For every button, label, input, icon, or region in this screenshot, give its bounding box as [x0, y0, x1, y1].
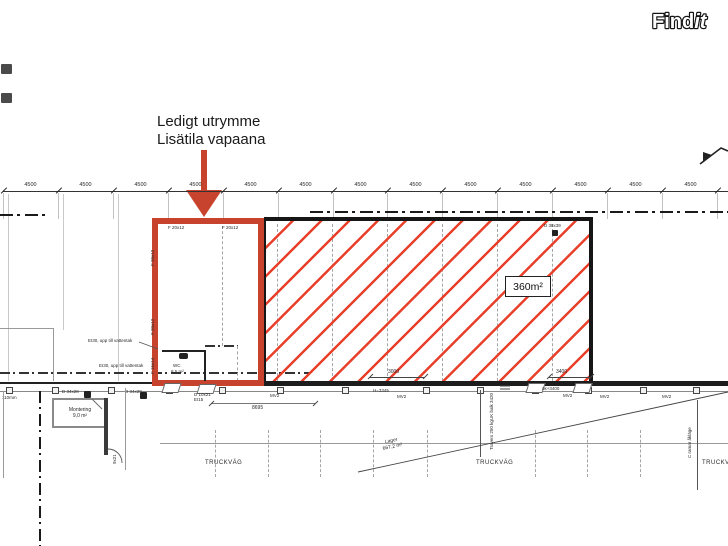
window-label-top-2: F 20x12: [222, 225, 238, 230]
fire-note-2: EI30, upp till vattentak: [99, 363, 143, 368]
truck-grid: [320, 430, 321, 477]
logo-it-text: it: [694, 11, 708, 33]
truck-route-label: TRUCKVÄG: [476, 460, 513, 466]
left-edge-wall: [3, 391, 4, 478]
rail-symbol: [500, 386, 510, 389]
corridor-wall: [125, 388, 126, 470]
area-size-label: 360m²: [513, 281, 543, 293]
column: [52, 387, 59, 394]
door-34-icon: [84, 391, 91, 398]
door-10-label: D 10x21EI15: [194, 392, 211, 402]
wall-type-label: MV2: [397, 394, 406, 399]
column: [108, 387, 115, 394]
area-size-box: 360m²: [505, 276, 551, 297]
hatched-area: [264, 217, 593, 386]
window-label-top-1: F 20x12: [168, 225, 184, 230]
wall-type-label: MV2: [600, 394, 609, 399]
left-room-top-wall: [0, 328, 53, 329]
floor-plan-page: { "logo": { "part1": "Find", "part2": "i…: [0, 0, 728, 546]
montering-side-wall: [104, 398, 108, 455]
column: [640, 387, 647, 394]
wc-name: WC: [173, 363, 181, 368]
truck-grid: [427, 430, 428, 477]
vacant-space-annotation: Ledigt utrymme Lisätila vapaana: [157, 113, 265, 149]
grid-line-c: [118, 194, 119, 381]
dim-3000-label: 3000: [388, 369, 399, 375]
window-label-side-1: F 20x12: [150, 236, 155, 266]
truck-grid: [268, 430, 269, 477]
dim-8695-label: 8695: [252, 405, 263, 411]
centerline-top-left-stub: [0, 214, 46, 216]
crane-frame-note: C ramar åkläge: [687, 406, 692, 458]
left-room-side-wall: [53, 328, 54, 381]
height-label: H=3345: [373, 388, 389, 393]
truck-grid: [640, 430, 641, 477]
column: [693, 387, 700, 394]
large-door-icon: [552, 230, 558, 236]
south-wall-main: [264, 381, 728, 386]
grid-line-b: [63, 194, 64, 330]
column: [423, 387, 430, 394]
fire-note-1: EI30, upp till vattentak: [88, 338, 132, 343]
toilet-icon: [179, 353, 188, 359]
lager-leader-line: [358, 392, 728, 472]
section-marker-arrow: [703, 152, 712, 161]
dim-3400-label: 3400: [556, 369, 567, 375]
bold-centerline-vertical: [39, 391, 41, 546]
svg-text:Findit: Findit: [652, 11, 708, 33]
door-leaf: [161, 383, 181, 393]
grid-line-a: [8, 194, 9, 381]
window-label-side-2: F 20x12: [150, 305, 155, 335]
truck-grid: [587, 430, 588, 477]
annotation-line-swedish: Ledigt utrymme: [157, 113, 265, 131]
logo-find-text: Find: [652, 11, 694, 33]
left-edge-marker-1: [1, 64, 12, 74]
truck-route-label: TRUCKVÄG: [702, 460, 728, 466]
wall-type-label: MV2: [270, 393, 279, 398]
dim-3000-line: [370, 377, 425, 378]
truck-route-label: TRUCKVÄG: [205, 460, 242, 466]
centerline-top-right: [310, 211, 728, 213]
grid-drop-lines: [3, 193, 718, 219]
travers-note: Travers 250 kgUK balk 3420: [489, 398, 494, 450]
column: [6, 387, 13, 394]
lager-label: Lager667,2 m²: [381, 436, 403, 452]
dim-8695-line: [211, 403, 315, 404]
montering-room: Montering 9,0 m²: [52, 398, 108, 428]
travers-rail-line: [480, 390, 481, 457]
crane-frame-line: [697, 400, 698, 490]
level-label: ök+3400: [542, 386, 559, 391]
truck-route-line: [160, 443, 728, 444]
left-edge-marker-2: [1, 93, 12, 103]
truck-grid: [535, 430, 536, 477]
dim-3400-line: [549, 377, 591, 378]
column: [342, 387, 349, 394]
door-9-label: 9x21: [112, 444, 117, 464]
wall-type-label: MV2: [662, 394, 671, 399]
wall-type-label: MV2: [563, 393, 572, 398]
findit-logo: Findit: [648, 4, 726, 36]
door-34-label: D 34x28: [62, 389, 79, 394]
column: [219, 387, 226, 394]
large-door-label: D 38x39: [544, 223, 561, 228]
thickness-label: 110mm: [2, 395, 17, 400]
truck-grid: [373, 430, 374, 477]
truck-grid: [215, 430, 216, 477]
annotation-line-finnish: Lisätila vapaana: [157, 131, 265, 149]
top-dimension-labels: 4500450045004500450045004500450045004500…: [3, 182, 718, 188]
window-label-side-small: F 15x14: [150, 350, 155, 374]
door-34-icon: [140, 392, 147, 399]
wc-area: 8,5 m²: [171, 369, 184, 374]
montering-area: 9,0 m²: [73, 413, 87, 419]
section-marker: [700, 148, 728, 164]
south-wall-left: [0, 382, 152, 384]
door-leaf: [572, 383, 592, 393]
